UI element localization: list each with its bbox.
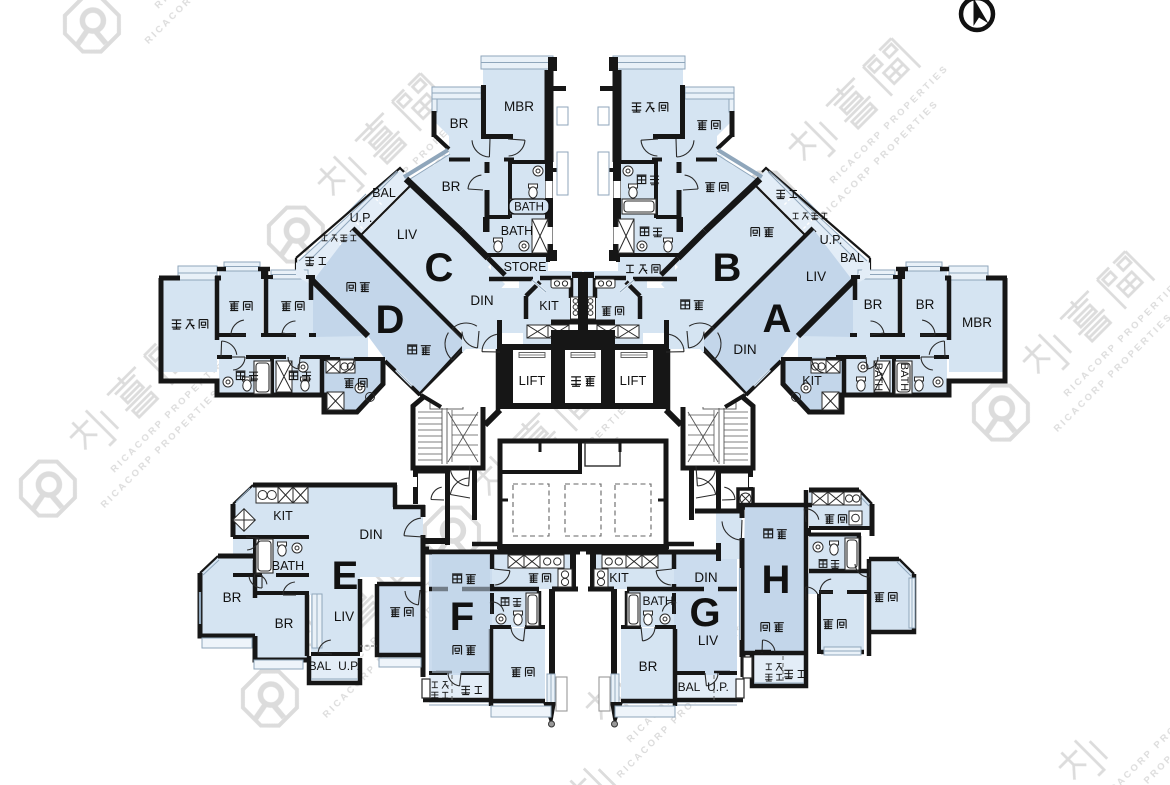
svg-text:U.P.: U.P. bbox=[338, 659, 360, 673]
svg-text:MBR: MBR bbox=[962, 315, 992, 330]
svg-text:BATH: BATH bbox=[501, 224, 533, 238]
svg-text:DIN: DIN bbox=[470, 293, 493, 308]
svg-text:BR: BR bbox=[223, 590, 242, 605]
svg-text:LIV: LIV bbox=[806, 269, 826, 284]
svg-text:U.P.: U.P. bbox=[707, 680, 729, 694]
svg-text:D: D bbox=[376, 298, 405, 342]
svg-text:C: C bbox=[425, 246, 454, 290]
svg-text:BR: BR bbox=[639, 659, 658, 674]
svg-text:DIN: DIN bbox=[733, 342, 756, 357]
svg-text:LIV: LIV bbox=[397, 227, 417, 242]
svg-text:LIV: LIV bbox=[698, 633, 718, 648]
svg-text:BATH: BATH bbox=[272, 559, 304, 573]
svg-text:G: G bbox=[689, 591, 720, 635]
svg-text:BAL: BAL bbox=[372, 186, 396, 200]
svg-text:BAL: BAL bbox=[678, 680, 701, 694]
svg-text:BR: BR bbox=[442, 179, 461, 194]
svg-text:KIT: KIT bbox=[609, 571, 629, 585]
svg-text:H: H bbox=[762, 558, 791, 602]
svg-text:BATH: BATH bbox=[514, 202, 544, 214]
svg-text:B: B bbox=[713, 246, 742, 290]
svg-text:DIN: DIN bbox=[694, 570, 717, 585]
svg-text:BR: BR bbox=[450, 116, 469, 131]
svg-text:BR: BR bbox=[916, 297, 935, 312]
svg-text:BAL: BAL bbox=[309, 659, 332, 673]
svg-text:F: F bbox=[450, 595, 474, 639]
svg-text:U.P.: U.P. bbox=[350, 211, 373, 225]
svg-text:BR: BR bbox=[275, 616, 294, 631]
svg-text:E: E bbox=[332, 554, 359, 598]
svg-text:BATH: BATH bbox=[872, 363, 884, 392]
svg-text:LIFT: LIFT bbox=[620, 373, 647, 388]
svg-text:STORE: STORE bbox=[504, 260, 547, 274]
svg-text:LIFT: LIFT bbox=[519, 373, 546, 388]
svg-text:KIT: KIT bbox=[802, 374, 822, 388]
svg-text:BATH: BATH bbox=[898, 363, 910, 392]
svg-text:U.P.: U.P. bbox=[820, 233, 843, 247]
svg-text:BR: BR bbox=[864, 297, 883, 312]
svg-text:DIN: DIN bbox=[359, 527, 382, 542]
svg-text:KIT: KIT bbox=[273, 509, 293, 523]
svg-text:LIV: LIV bbox=[334, 609, 354, 624]
svg-text:MBR: MBR bbox=[504, 99, 534, 114]
svg-text:BATH: BATH bbox=[642, 594, 673, 608]
svg-text:BAL: BAL bbox=[840, 251, 864, 265]
svg-text:A: A bbox=[763, 297, 792, 341]
svg-text:KIT: KIT bbox=[539, 299, 559, 313]
